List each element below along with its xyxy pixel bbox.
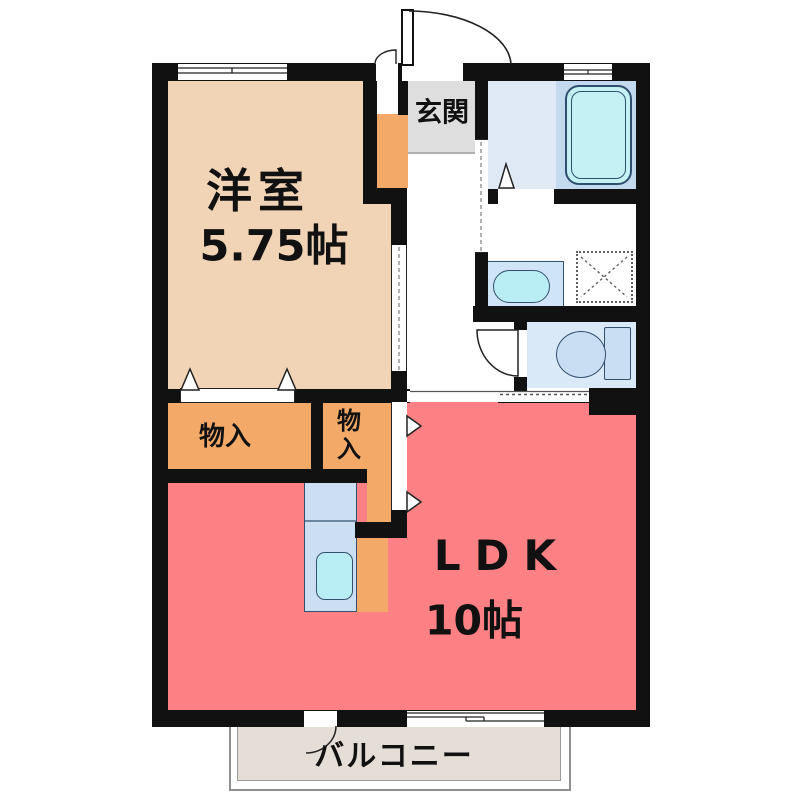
balcony-label: バルコニー (314, 742, 473, 772)
bathtub-inner-line (571, 91, 626, 179)
meter-box-door-arc (375, 50, 396, 64)
storage-left-label: 物入 (199, 424, 251, 450)
western-room-label: 洋室 (206, 168, 310, 214)
meter-box-recess (377, 81, 398, 114)
balcony-window-gap (407, 711, 544, 727)
storage-right-label-char2: 入 (337, 437, 361, 461)
wall-toilet-left-b (514, 377, 527, 392)
wall-westroom-bottom-a (152, 389, 180, 403)
ldk-size-label: 10帖 (425, 601, 523, 642)
western-room-extension (363, 204, 391, 390)
bathroom-door-gap (498, 189, 554, 204)
floor-plan: 洋室 5.75帖 玄関 物入 物 入 LDK 10帖 バルコニー (0, 0, 800, 800)
shoe-cabinet-icon (377, 114, 408, 188)
wall-washroom-bottom (473, 306, 636, 322)
wall-westroom-bottom-b (295, 389, 410, 403)
wall-jog (363, 188, 407, 204)
storage-right-label-char1: 物 (337, 409, 361, 433)
toilet-door-gap (514, 330, 527, 377)
wall-storage-divider (311, 402, 323, 470)
hall-ldk-threshold (407, 391, 589, 402)
westroom-sliding-door (391, 245, 407, 371)
wall-toilet-left-a (514, 322, 527, 330)
wall-bottom (152, 710, 650, 727)
bathroom-floor (488, 81, 556, 190)
wall-above-slide-door (391, 204, 407, 245)
kitchen-sink-icon (316, 552, 353, 600)
toilet-icon (556, 331, 606, 378)
western-room-size: 5.75帖 (199, 226, 348, 269)
wall-westroom-right-upper (363, 81, 377, 191)
closet-side-strip (367, 470, 391, 523)
wall-kitchen-corner (355, 522, 407, 538)
meter-box-door-gap (376, 63, 398, 81)
washroom-sliding-door (475, 139, 488, 253)
futon-closet-opening (180, 388, 295, 403)
bathtub-icon (565, 85, 632, 185)
entrance-door-arc (409, 11, 511, 64)
closet-folding-doors (391, 402, 407, 510)
wall-toilet-bottom (589, 388, 650, 415)
washing-machine-pan-icon (576, 251, 633, 303)
toilet-tank (604, 327, 631, 380)
wash-basin-icon (493, 270, 550, 303)
wall-entrance-left (398, 81, 408, 115)
wall-storage-bottom (152, 469, 367, 483)
toilet-door-arc (477, 330, 518, 376)
ldk-room-mid (391, 538, 407, 710)
wall-closet-bottom (391, 510, 407, 524)
bathroom-window (564, 64, 612, 80)
entrance-door-leaf (401, 9, 414, 66)
entrance-label: 玄関 (415, 100, 469, 127)
ldk-label: LDK (434, 535, 570, 577)
balcony-door-gap (304, 711, 337, 727)
westroom-window (178, 64, 287, 80)
kitchen-side-strip (357, 538, 388, 612)
